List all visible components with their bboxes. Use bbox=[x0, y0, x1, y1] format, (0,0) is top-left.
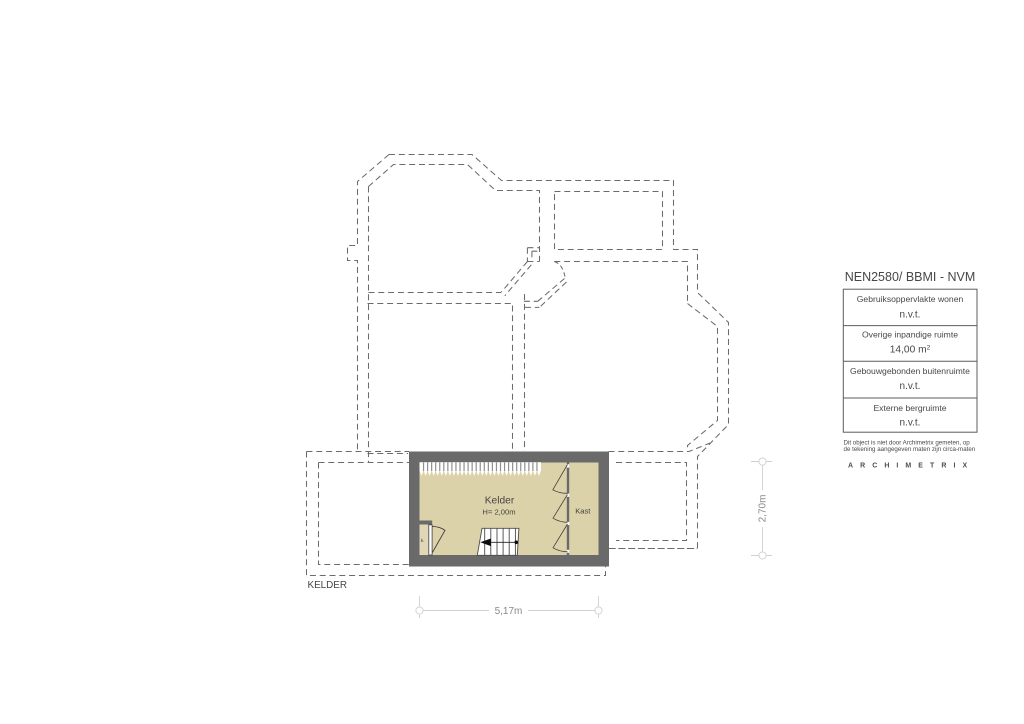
svg-text:14,00 m2: 14,00 m2 bbox=[890, 344, 931, 355]
svg-text:n.v.t.: n.v.t. bbox=[900, 310, 921, 321]
svg-text:ARCHIMETRIX: ARCHIMETRIX bbox=[848, 462, 974, 469]
svg-text:de tekening aangegeven maten z: de tekening aangegeven maten zijn circa-… bbox=[844, 446, 976, 453]
svg-text:Overige inpandige ruimte: Overige inpandige ruimte bbox=[862, 330, 958, 340]
svg-text:2,70m: 2,70m bbox=[758, 495, 769, 523]
svg-text:Externe bergruimte: Externe bergruimte bbox=[873, 403, 946, 413]
svg-text:KELDER: KELDER bbox=[308, 580, 348, 591]
svg-text:H= 2,00m: H= 2,00m bbox=[482, 508, 515, 517]
svg-text:Kast: Kast bbox=[575, 507, 591, 516]
svg-text:n.v.t.: n.v.t. bbox=[900, 417, 921, 428]
svg-text:NEN2580/ BBMI - NVM: NEN2580/ BBMI - NVM bbox=[845, 270, 976, 284]
svg-text:n.v.t.: n.v.t. bbox=[900, 381, 921, 392]
svg-text:Kelder: Kelder bbox=[485, 495, 515, 506]
svg-text:k.: k. bbox=[421, 538, 425, 544]
svg-text:Gebruiksoppervlakte wonen: Gebruiksoppervlakte wonen bbox=[857, 294, 964, 304]
svg-text:Gebouwgebonden buitenruimte: Gebouwgebonden buitenruimte bbox=[850, 366, 970, 376]
svg-text:5,17m: 5,17m bbox=[495, 606, 523, 617]
